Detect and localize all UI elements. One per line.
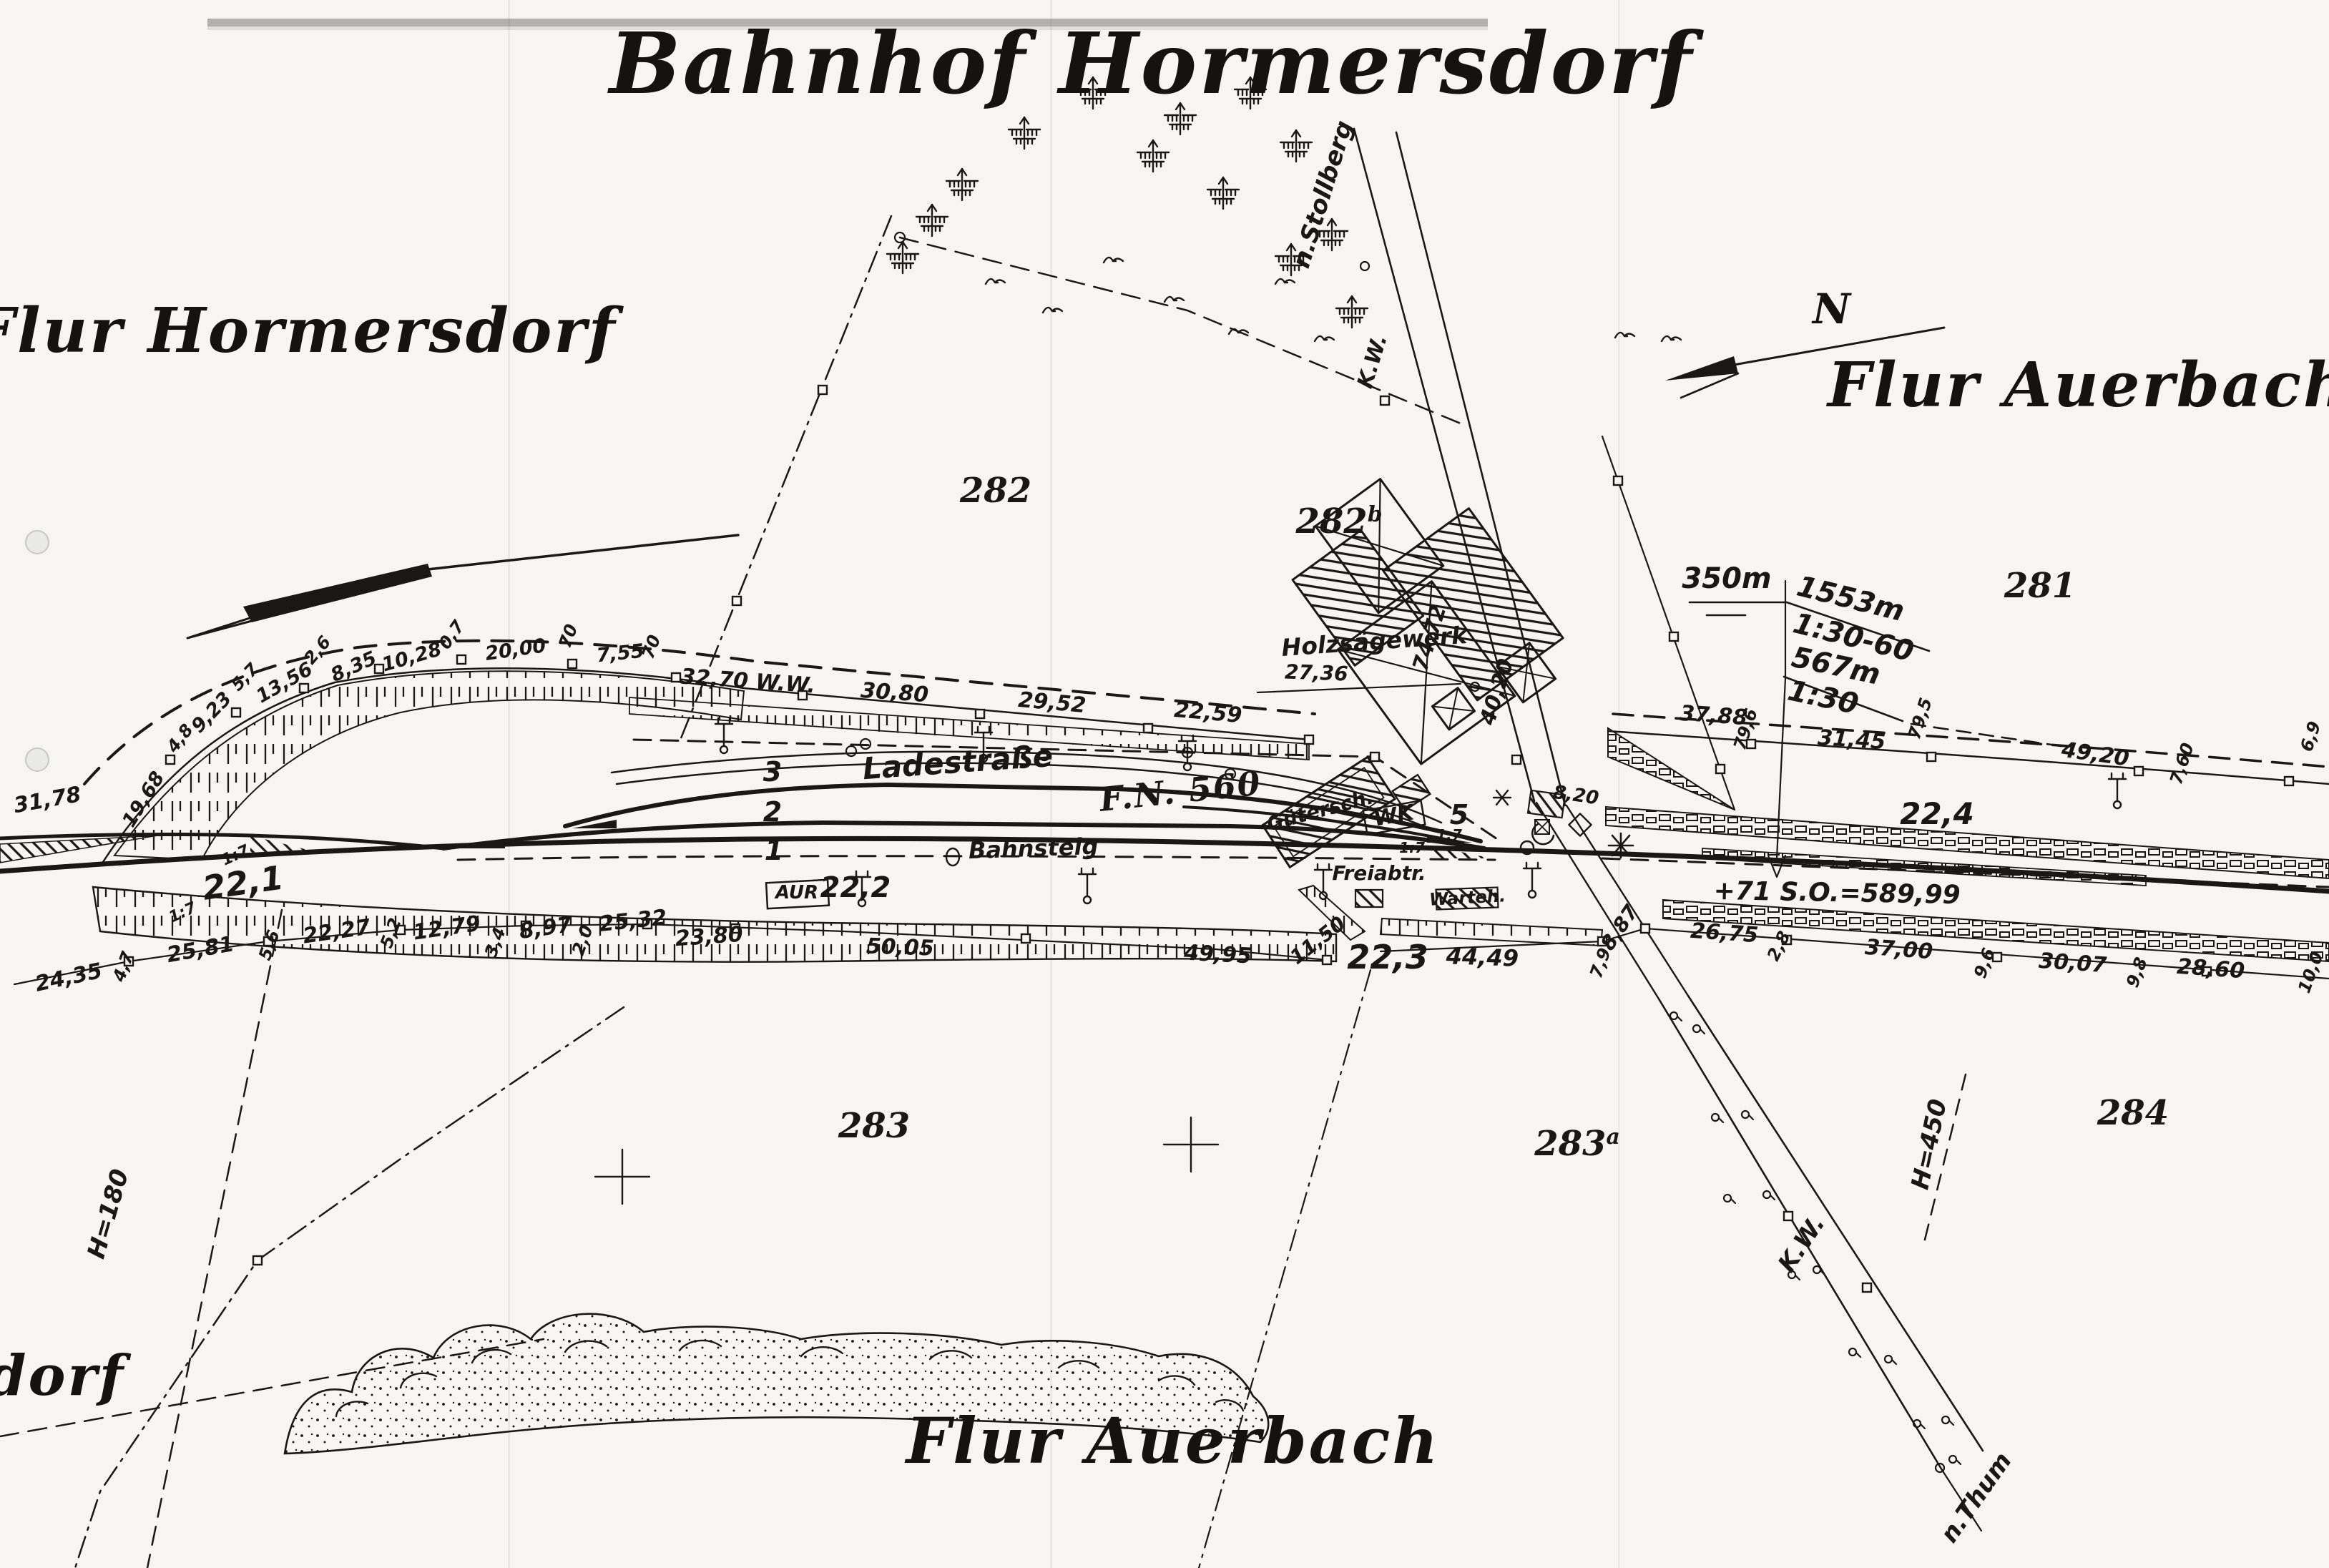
measurement-label: 30,07: [2038, 949, 2107, 979]
north-letter: N: [1811, 285, 1853, 333]
boundary-stone: [568, 660, 577, 668]
measurement-label: 50,05: [866, 934, 934, 961]
boundary-stone: [1716, 765, 1725, 773]
boundary-stone: [1784, 1212, 1793, 1220]
boundary-stone: [1927, 753, 1936, 761]
boundary-stone: [1641, 924, 1649, 933]
flur-label-right: Flur Auerbach: [1825, 349, 2329, 421]
freiabtritt-building: [1355, 890, 1383, 907]
fold-line-3: [1618, 0, 1620, 1568]
label-freiabtritt: Freiabtr.: [1332, 861, 1426, 885]
scale-350m: 350m: [1682, 562, 1771, 595]
boundary-stone: [1381, 396, 1389, 405]
measurement-label: 44,49: [1445, 942, 1519, 972]
boundary-stone: [1305, 735, 1313, 744]
boundary-stone: [1323, 956, 1331, 964]
boundary-stone: [2285, 777, 2293, 785]
boundary-stone: [1669, 632, 1678, 641]
measurement-label: 26,75: [1690, 918, 1759, 949]
plan-canvas: Bahnhof Hormersdorf Flur Hormersdorf Flu…: [0, 0, 2329, 1568]
boundary-stone: [166, 755, 175, 764]
width-22-2: 22,2: [820, 871, 891, 904]
punch-hole-2: [26, 748, 49, 771]
measurement-label: 30,80: [860, 678, 929, 708]
boundary-stone: [1144, 724, 1152, 732]
boundary-stone: [818, 386, 827, 394]
switch-signal-asterisk-icon: [1609, 833, 1633, 858]
flur-label-bottom: Flur Auerbach: [904, 1403, 1441, 1478]
label-wartehalle: Warteh.: [1429, 886, 1506, 910]
flur-label-left: Flur Hormersdorf: [0, 295, 624, 367]
track-number-3: 3: [763, 756, 782, 788]
measurement-label: 27,36: [1284, 660, 1348, 685]
punch-hole-1: [26, 531, 49, 554]
width-22-3: 22,3: [1347, 938, 1428, 976]
boundary-stone: [732, 597, 741, 605]
track-number-2: 2: [763, 796, 782, 828]
measurement-label: 37,00: [1864, 935, 1933, 965]
map-title: Bahnhof Hormersdorf: [607, 14, 1704, 113]
measurement-label: 1:7: [1399, 839, 1425, 856]
fold-line-2: [1050, 0, 1052, 1568]
boundary-stone: [976, 710, 984, 718]
measurement-label: 23,80: [675, 922, 744, 952]
track-number-1: 1: [765, 835, 783, 866]
parcel-281: 281: [2004, 566, 2076, 606]
boundary-stone: [672, 673, 680, 682]
parcel-284: 284: [2097, 1093, 2169, 1133]
boundary-stone: [1863, 1283, 1871, 1292]
label-aur: AUR: [774, 882, 818, 903]
boundary-stone: [1371, 753, 1379, 761]
flur-label-bottom-left-partial: dorf: [0, 1343, 132, 1408]
boundary-stone: [253, 1256, 262, 1265]
label-schienenoberkante: +71 S.O.=589,99: [1713, 876, 1961, 910]
measurement-label: 1:7: [1436, 826, 1462, 843]
measurement-label: 31,45: [1817, 725, 1886, 755]
label-bahnsteig: Bahnsteig: [968, 833, 1099, 864]
scanned-station-plan: Bahnhof Hormersdorf Flur Hormersdorf Flu…: [0, 0, 2329, 1568]
boundary-stone: [1614, 476, 1622, 485]
boundary-stone: [457, 655, 466, 664]
parcel-282: 282: [959, 471, 1031, 511]
boundary-stone: [232, 708, 240, 717]
boundary-stone: [1512, 755, 1521, 764]
boundary-stone: [2134, 767, 2143, 775]
width-22-4: 22,4: [1900, 796, 1974, 831]
parcel-283: 283: [838, 1106, 910, 1146]
measurement-label: 28,60: [2176, 954, 2245, 984]
boundary-stone: [1021, 934, 1030, 943]
measurement-label: 49,95: [1182, 941, 1252, 969]
